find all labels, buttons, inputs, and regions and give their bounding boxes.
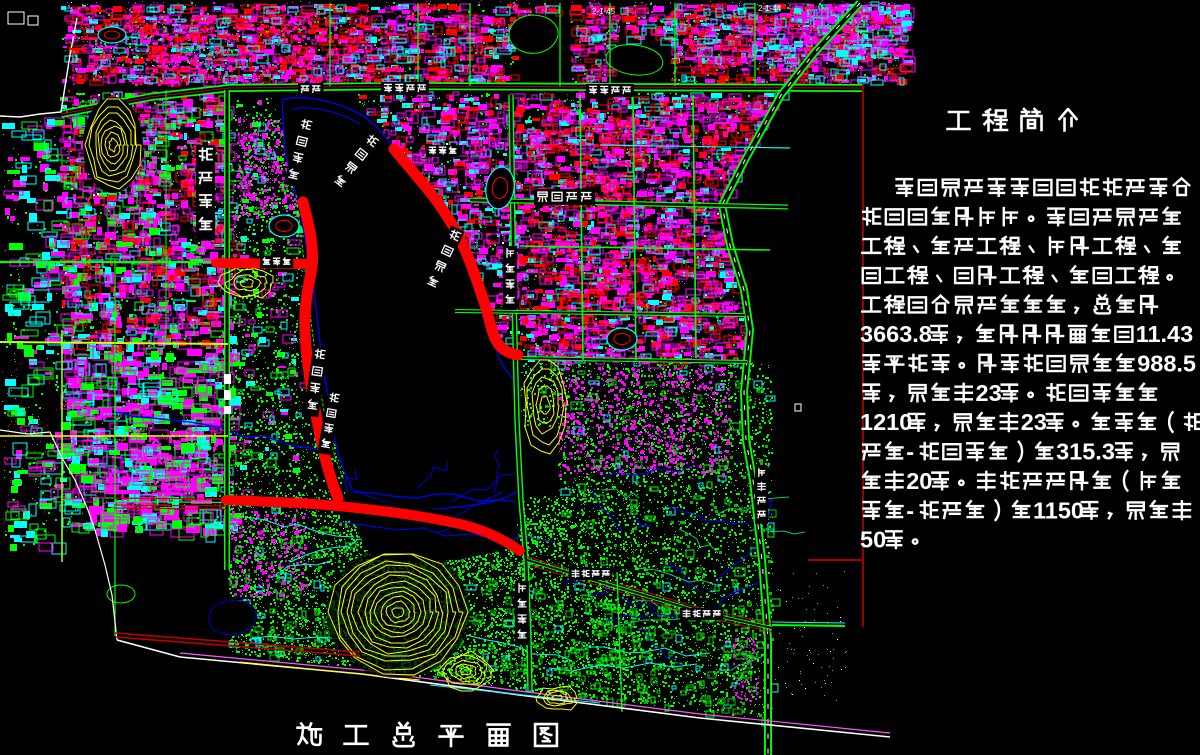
svg-text:23: 23: [976, 380, 1002, 406]
svg-text:3663.8: 3663.8: [860, 321, 932, 347]
svg-text:2-1-44: 2-1-44: [758, 4, 782, 13]
svg-text:315.3: 315.3: [1056, 439, 1115, 465]
svg-text:-: -: [906, 439, 914, 465]
svg-text:1210: 1210: [860, 409, 912, 435]
svg-text:2-1-45: 2-1-45: [592, 7, 616, 16]
svg-text:50: 50: [860, 527, 886, 553]
svg-text:1150: 1150: [1033, 497, 1084, 523]
svg-text:-: -: [906, 497, 914, 523]
svg-text:11.43: 11.43: [1136, 321, 1194, 347]
svg-text:23: 23: [1021, 409, 1047, 435]
svg-text:20: 20: [906, 468, 932, 494]
svg-text:988.5: 988.5: [1137, 351, 1196, 377]
